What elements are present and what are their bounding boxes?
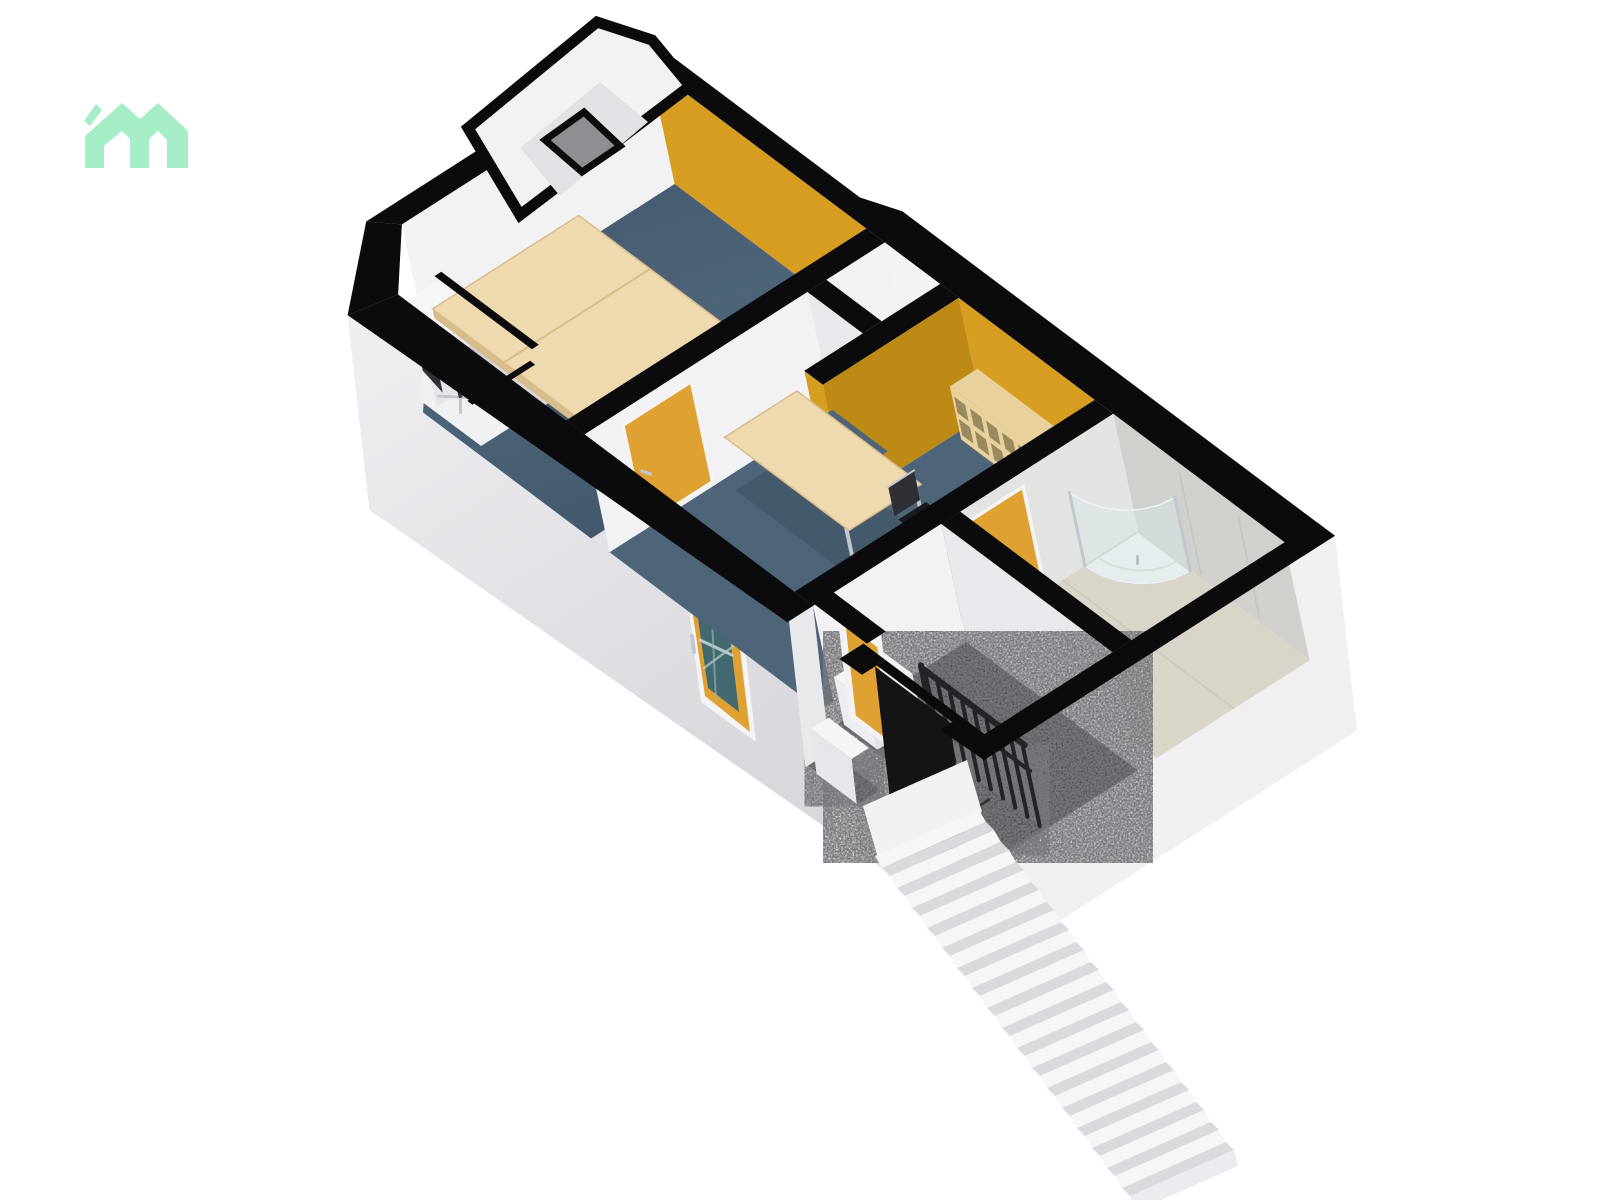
logo-m-mark — [85, 103, 188, 168]
entry-door-handle — [692, 636, 694, 652]
logo-accent — [84, 104, 102, 126]
floorplan-viewer — [0, 0, 1600, 1200]
floorplan-3d-render — [0, 0, 1600, 1200]
floorplanner-logo — [84, 103, 188, 168]
